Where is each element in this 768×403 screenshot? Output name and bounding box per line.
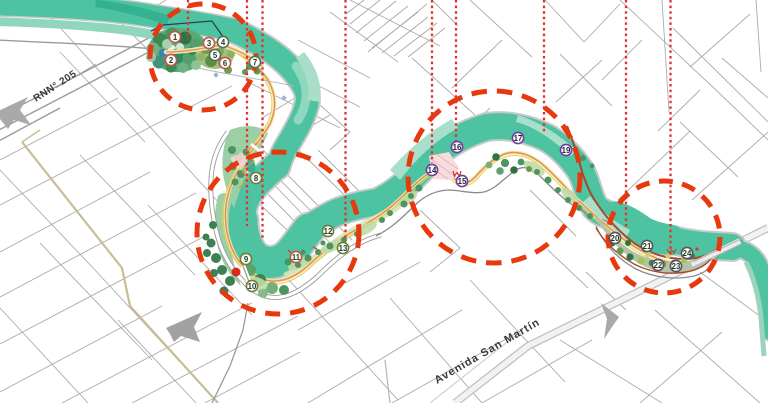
svg-text:7: 7 [253, 58, 257, 67]
svg-text:13: 13 [339, 244, 348, 253]
svg-text:1: 1 [173, 33, 178, 42]
svg-text:19: 19 [562, 146, 571, 155]
svg-text:4: 4 [221, 38, 226, 47]
svg-text:11: 11 [292, 253, 301, 262]
svg-text:9: 9 [244, 255, 249, 264]
svg-text:21: 21 [643, 242, 652, 251]
svg-text:10: 10 [248, 282, 257, 291]
svg-text:23: 23 [672, 262, 681, 271]
svg-text:5: 5 [213, 51, 218, 60]
svg-text:12: 12 [324, 227, 333, 236]
svg-text:8: 8 [254, 174, 259, 183]
svg-text:24: 24 [683, 249, 692, 258]
svg-text:22: 22 [654, 261, 663, 270]
svg-text:14: 14 [428, 166, 437, 175]
svg-text:16: 16 [453, 143, 462, 152]
svg-text:20: 20 [611, 234, 620, 243]
svg-text:6: 6 [223, 59, 228, 68]
svg-text:17: 17 [514, 134, 523, 143]
svg-text:3: 3 [207, 39, 212, 48]
svg-text:15: 15 [458, 177, 467, 186]
svg-text:2: 2 [169, 56, 174, 65]
